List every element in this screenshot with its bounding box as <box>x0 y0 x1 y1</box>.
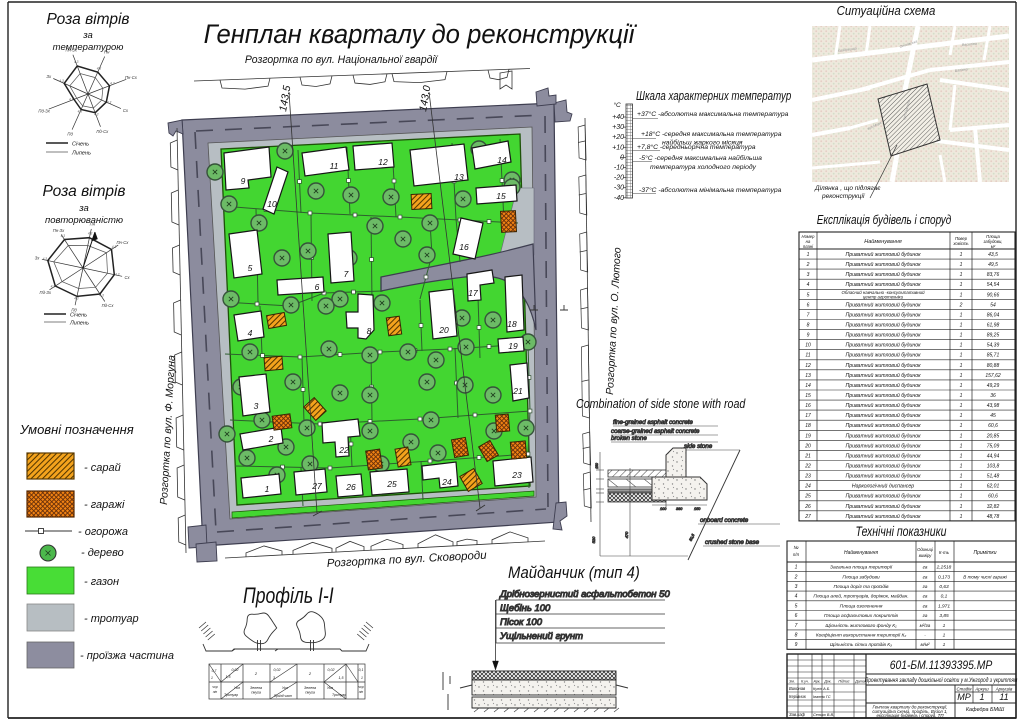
svg-text:1: 1 <box>960 373 963 379</box>
svg-text:9: 9 <box>241 176 246 186</box>
svg-text:10: 10 <box>805 343 811 349</box>
svg-text:Арк.: Арк. <box>812 680 820 684</box>
svg-text:чор: чор <box>212 685 217 689</box>
svg-text:Приватний житловий будинок: Приватний житловий будинок <box>845 301 921 308</box>
svg-text:2: 2 <box>268 434 274 444</box>
svg-text:МР: МР <box>957 692 971 702</box>
svg-text:16: 16 <box>805 403 811 409</box>
svg-text:1: 1 <box>960 413 963 419</box>
svg-text:Приватний житловий будинок: Приватний житловий будинок <box>845 321 921 328</box>
svg-text:0,1: 0,1 <box>359 668 364 672</box>
svg-text:4,3: 4,3 <box>112 245 117 249</box>
svg-text:Приватний житловий будинок: Приватний житловий будинок <box>845 352 921 359</box>
svg-text:смуга: смуга <box>305 691 315 695</box>
svg-text:0,02: 0,02 <box>328 668 335 672</box>
svg-text:- дерево: - дерево <box>81 547 124 559</box>
svg-text:Пн-Сх: Пн-Сх <box>125 75 138 80</box>
svg-text:Щільність житлового фонду К₁: Щільність житлового фонду К₁ <box>825 623 897 629</box>
svg-text:Площа забудови: Площа забудови <box>842 574 880 580</box>
svg-text:Липень: Липень <box>69 321 89 327</box>
svg-text:-40: -40 <box>614 195 624 202</box>
svg-text:Приватний житловий будинок: Приватний житловий будинок <box>845 261 921 268</box>
svg-text:11: 11 <box>330 161 339 171</box>
svg-text:Приватний житловий будинок: Приватний житловий будинок <box>845 432 921 439</box>
svg-text:1: 1 <box>361 676 363 680</box>
svg-text:Примітки: Примітки <box>973 550 996 556</box>
svg-text:380: 380 <box>676 507 683 511</box>
svg-text:21: 21 <box>512 386 523 396</box>
svg-text:1: 1 <box>960 484 963 490</box>
svg-text:2: 2 <box>959 302 963 308</box>
svg-text:150: 150 <box>694 507 701 511</box>
svg-text:520: 520 <box>591 536 596 543</box>
svg-text:4,3: 4,3 <box>110 82 115 86</box>
svg-text:Ділянка , що підлягає: Ділянка , що підлягає <box>814 184 881 192</box>
svg-text:157,62: 157,62 <box>985 373 1001 379</box>
svg-text:+30: +30 <box>612 124 624 131</box>
svg-text:м²: м² <box>991 244 996 249</box>
svg-text:24: 24 <box>804 484 811 490</box>
svg-text:49,29: 49,29 <box>987 383 1000 389</box>
svg-text:1: 1 <box>960 343 963 349</box>
svg-text:Липень: Липень <box>71 151 91 157</box>
svg-text:Пн-Сх: Пн-Сх <box>116 240 129 245</box>
svg-text:3: 3 <box>807 272 810 278</box>
svg-text:15: 15 <box>496 191 506 201</box>
svg-text:6: 6 <box>807 302 810 308</box>
svg-text:7: 7 <box>807 312 810 318</box>
svg-text:Приватний житловий будинок: Приватний житловий будинок <box>845 281 921 288</box>
svg-text:2,2518: 2,2518 <box>936 565 952 571</box>
svg-text:Док.: Док. <box>823 680 831 684</box>
svg-text:+40: +40 <box>612 114 624 121</box>
svg-text:12: 12 <box>378 157 388 167</box>
svg-text:0,02: 0,02 <box>274 668 281 672</box>
svg-text:4: 4 <box>248 328 253 338</box>
svg-text:-10: -10 <box>614 165 624 172</box>
svg-text:1: 1 <box>960 514 963 520</box>
svg-text:1: 1 <box>943 623 946 629</box>
svg-text:Підпис: Підпис <box>838 680 849 684</box>
svg-text:51,48: 51,48 <box>987 474 1000 480</box>
svg-text:Кулін А.Б.: Кулін А.Б. <box>813 687 830 691</box>
svg-text:1: 1 <box>960 453 963 459</box>
svg-text:Приватний житловий будинок: Приватний житловий будинок <box>845 382 921 389</box>
svg-text:Виконав: Виконав <box>789 686 806 691</box>
svg-text:side stone: side stone <box>684 443 713 450</box>
svg-text:Наркологічний диспансер: Наркологічний диспансер <box>852 483 914 490</box>
svg-text:Приватний житловий будинок: Приватний житловий будинок <box>845 392 921 399</box>
svg-text:Приватний житловий будинок: Приватний житловий будинок <box>845 493 921 500</box>
svg-text:Площа озеленення: Площа озеленення <box>840 603 883 609</box>
svg-text:га: га <box>923 603 928 608</box>
svg-text:Приватний житловий будинок: Приватний житловий будинок <box>845 412 921 419</box>
svg-text:Зм.: Зм. <box>789 680 795 684</box>
svg-text:coarse-grained asphalt concret: coarse-grained asphalt concrete <box>611 428 700 435</box>
svg-text:2: 2 <box>794 574 798 580</box>
svg-text:+37°С -абсолютна максимальна т: +37°С -абсолютна максимальна температура <box>637 110 789 118</box>
svg-text:470: 470 <box>624 531 629 538</box>
svg-text:Керівник: Керівник <box>789 694 807 699</box>
svg-text:1,5: 1,5 <box>339 676 344 680</box>
svg-text:-30: -30 <box>614 185 624 192</box>
svg-text:1: 1 <box>960 252 963 258</box>
svg-text:26: 26 <box>804 504 811 510</box>
svg-text:1: 1 <box>960 383 963 389</box>
svg-text:Приватний житловий будинок: Приватний житловий будинок <box>845 271 921 278</box>
svg-text:7: 7 <box>795 623 798 629</box>
svg-text:54,39: 54,39 <box>987 343 1000 349</box>
svg-text:- тротуар: - тротуар <box>84 613 139 625</box>
svg-text:1: 1 <box>960 262 963 268</box>
svg-text:Аркуш: Аркуш <box>974 687 989 692</box>
svg-text:Проїзд част: Проїзд част <box>274 694 293 698</box>
svg-text:3: 3 <box>273 676 275 680</box>
svg-text:-20: -20 <box>614 175 624 182</box>
svg-text:8: 8 <box>807 322 810 328</box>
svg-text:Укл: Укл <box>282 686 288 690</box>
svg-text:1: 1 <box>960 282 963 288</box>
svg-text:Проектування закладу дошкільно: Проектування закладу дошкільної освіти у… <box>865 678 1018 685</box>
svg-text:Приватний житловий будинок: Приватний житловий будинок <box>845 332 921 339</box>
svg-text:16: 16 <box>459 242 469 252</box>
svg-text:центр агротехніки: центр агротехніки <box>863 294 904 299</box>
svg-text:Площа доріг та проїздів: Площа доріг та проїздів <box>833 584 889 590</box>
svg-text:19: 19 <box>805 433 811 439</box>
svg-text:Пд: Пд <box>67 132 73 137</box>
svg-text:Найменування: Найменування <box>844 549 878 556</box>
svg-text:Площа асфальтових покриттів: Площа асфальтових покриттів <box>824 613 898 619</box>
svg-text:4,3: 4,3 <box>61 234 66 238</box>
svg-text:- сарай: - сарай <box>84 462 121 474</box>
svg-text:га: га <box>923 565 928 570</box>
svg-text:га: га <box>923 574 928 579</box>
svg-text:14: 14 <box>497 155 507 165</box>
svg-text:Профіль І-І: Профіль І-І <box>243 584 334 608</box>
svg-text:60,6: 60,6 <box>988 494 998 500</box>
svg-text:Пд-Зх: Пд-Зх <box>40 290 52 295</box>
svg-text:Експлікація будівель і споруд: Експлікація будівель і споруд <box>817 214 952 227</box>
svg-text:Технічні показники: Технічні показники <box>856 524 947 540</box>
svg-text:Приватний житловий будинок: Приватний житловий будинок <box>845 513 921 520</box>
svg-text:86,04: 86,04 <box>987 312 1000 318</box>
svg-text:1: 1 <box>960 443 963 449</box>
svg-text:В тому числі гаражі: В тому числі гаражі <box>963 574 1007 579</box>
svg-text:Кафедра БМіШ: Кафедра БМіШ <box>966 707 1004 713</box>
svg-text:1: 1 <box>960 292 963 298</box>
svg-text:смуга: смуга <box>251 691 261 695</box>
svg-text:+10: +10 <box>612 144 624 151</box>
svg-text:плані: плані <box>803 244 814 249</box>
svg-text:1: 1 <box>960 403 963 409</box>
svg-text:+20: +20 <box>612 134 624 141</box>
svg-text:1: 1 <box>960 353 963 359</box>
svg-text:4: 4 <box>795 594 798 600</box>
svg-text:1: 1 <box>807 252 810 258</box>
svg-text:1: 1 <box>960 463 963 469</box>
svg-text:20: 20 <box>438 325 449 335</box>
svg-text:4,3: 4,3 <box>97 66 102 70</box>
svg-text:4: 4 <box>807 282 810 288</box>
svg-text:22: 22 <box>338 445 349 455</box>
svg-text:60,6: 60,6 <box>988 423 998 429</box>
svg-text:22: 22 <box>804 463 811 469</box>
svg-text:9: 9 <box>795 642 798 648</box>
svg-text:Майданчик (тип 4): Майданчик (тип 4) <box>508 564 640 582</box>
svg-text:Пн: Пн <box>90 221 96 226</box>
svg-text:75,09: 75,09 <box>987 443 1000 449</box>
svg-text:Найменування: Найменування <box>864 238 902 245</box>
svg-text:лін: лін <box>358 690 364 694</box>
svg-text:Combination of side stone with: Combination of side stone with road <box>576 396 746 411</box>
svg-text:5: 5 <box>807 292 810 298</box>
svg-text:1: 1 <box>211 676 213 680</box>
svg-text:Приватний житловий будинок: Приватний житловий будинок <box>845 372 921 379</box>
svg-text:6: 6 <box>795 613 798 619</box>
svg-text:17: 17 <box>468 288 478 298</box>
svg-text:43,98: 43,98 <box>987 403 1000 409</box>
svg-text:Пд-Зх: Пд-Зх <box>38 108 50 113</box>
svg-text:8: 8 <box>367 326 372 336</box>
svg-text:4,3: 4,3 <box>59 79 64 83</box>
svg-text:61,98: 61,98 <box>987 322 1000 328</box>
svg-text:11: 11 <box>805 353 810 359</box>
svg-text:1: 1 <box>960 504 963 510</box>
svg-text:1: 1 <box>960 423 963 429</box>
svg-text:Приватний житловий будинок: Приватний житловий будинок <box>845 422 921 429</box>
svg-text:м/м²: м/м² <box>920 642 930 647</box>
svg-text:1,971: 1,971 <box>938 603 950 609</box>
svg-text:4,3: 4,3 <box>107 100 112 104</box>
svg-text:Сх: Сх <box>123 108 129 113</box>
svg-text:20,85: 20,85 <box>986 433 1000 439</box>
svg-text:Пд-Сх: Пд-Сх <box>102 303 115 308</box>
svg-text:14: 14 <box>805 383 811 389</box>
svg-text:2: 2 <box>806 262 810 268</box>
svg-text:Шкала характерних температур: Шкала характерних температур <box>636 90 791 103</box>
svg-text:Одиниці: Одиниці <box>917 547 934 552</box>
svg-text:Умовні позначення: Умовні позначення <box>19 422 134 437</box>
svg-text:Приватний житловий будинок: Приватний житловий будинок <box>845 473 921 480</box>
svg-text:1: 1 <box>960 393 963 399</box>
svg-text:Іваннік ГС: Іваннік ГС <box>813 695 831 699</box>
svg-text:Січень: Січень <box>70 313 87 319</box>
svg-text:1: 1 <box>943 633 946 639</box>
svg-text:1: 1 <box>943 642 946 648</box>
svg-text:1: 1 <box>960 494 963 500</box>
svg-text:реконструкції: реконструкції <box>821 192 866 200</box>
svg-text:601-БМ.11393395.МР: 601-БМ.11393395.МР <box>890 660 993 673</box>
svg-text:4,3: 4,3 <box>115 272 120 276</box>
svg-text:32,82: 32,82 <box>987 504 1000 510</box>
svg-text:8: 8 <box>795 633 798 639</box>
svg-text:+7,8°С -середньорічна температ: +7,8°С -середньорічна температура <box>637 143 756 151</box>
svg-text:Коефіцієнт використання терито: Коефіцієнт використання території К₂ <box>816 633 907 639</box>
svg-text:6: 6 <box>315 282 320 292</box>
svg-text:Дата: Дата <box>854 680 864 684</box>
svg-text:0,173: 0,173 <box>938 574 950 580</box>
svg-text:К.уч.: К.уч. <box>801 680 809 684</box>
svg-text:19: 19 <box>508 341 518 351</box>
svg-text:36: 36 <box>990 393 996 399</box>
svg-text:Щебінь 100: Щебінь 100 <box>500 603 551 614</box>
svg-text:49,5: 49,5 <box>988 262 998 268</box>
svg-text:27: 27 <box>311 481 322 491</box>
svg-text:повторюваністю: повторюваністю <box>45 215 123 226</box>
svg-text:температура холодного періоду: температура холодного періоду <box>650 163 757 171</box>
svg-text:0,7: 0,7 <box>212 669 217 673</box>
svg-text:Ситуаційна схема: Ситуаційна схема <box>837 3 936 18</box>
svg-text:0: 0 <box>620 154 624 161</box>
svg-text:Укл: Укл <box>327 686 333 690</box>
svg-text:-5°С -середня максимальна найб: -5°С -середня максимальна найбільша <box>639 154 762 162</box>
svg-text:чор: чор <box>358 685 363 689</box>
svg-text:Приватний житловий будинок: Приватний житловий будинок <box>845 342 921 349</box>
svg-text:Розгортка по вул. Національної: Розгортка по вул. Національної гвардії <box>245 54 439 66</box>
svg-text:Пісок 100: Пісок 100 <box>500 617 543 628</box>
svg-text:83,76: 83,76 <box>987 272 1000 278</box>
svg-text:виміру: виміру <box>919 553 933 558</box>
svg-text:Дрібнозернистий асфальтобетон: Дрібнозернистий асфальтобетон 50 <box>499 589 670 600</box>
svg-text:температурою: температурою <box>53 42 124 53</box>
svg-text:Зелена: Зелена <box>250 686 262 690</box>
svg-text:°С: °С <box>613 101 621 109</box>
svg-text:17: 17 <box>805 413 811 419</box>
svg-text:13: 13 <box>454 172 464 182</box>
svg-text:Аркушів: Аркушів <box>995 687 1013 692</box>
svg-text:3: 3 <box>254 401 259 411</box>
svg-text:10: 10 <box>267 199 277 209</box>
svg-text:fine-grained asphalt concrete: fine-grained asphalt concrete <box>613 419 693 426</box>
svg-text:Пн-Зх: Пн-Зх <box>53 228 65 233</box>
svg-text:150: 150 <box>595 463 599 469</box>
svg-text:0,1: 0,1 <box>941 594 948 600</box>
svg-text:20: 20 <box>804 443 811 449</box>
svg-text:Загальна площа території: Загальна площа території <box>830 565 893 571</box>
svg-text:54: 54 <box>990 302 996 308</box>
svg-text:54,54: 54,54 <box>987 282 1000 288</box>
svg-text:Приватний житловий будинок: Приватний житловий будинок <box>845 362 921 369</box>
svg-text:Сх: Сх <box>124 275 130 280</box>
svg-text:Площа алей, тротуарів, доріжок: Площа алей, тротуарів, доріжок, майдан. <box>813 593 908 600</box>
svg-text:onboard concrete: onboard concrete <box>700 517 749 524</box>
svg-text:лін: лін <box>212 690 218 694</box>
svg-text:Ущільнений грунт: Ущільнений грунт <box>499 631 583 642</box>
svg-text:- газон: - газон <box>84 576 119 588</box>
svg-text:85,71: 85,71 <box>987 353 1000 359</box>
svg-text:Приватний житловий будинок: Приватний житловий будинок <box>845 402 921 409</box>
svg-text:га: га <box>923 613 928 618</box>
svg-text:48,78: 48,78 <box>987 514 1000 520</box>
svg-text:Укл: Укл <box>234 686 240 690</box>
svg-text:експлікація будівель і споруд,: експлікація будівель і споруд, ТП <box>876 713 944 718</box>
svg-text:м²/га: м²/га <box>920 623 931 628</box>
svg-text:Тротуар: Тротуар <box>224 693 238 697</box>
svg-text:1: 1 <box>265 484 270 494</box>
svg-text:crushed stone base: crushed stone base <box>705 539 760 546</box>
svg-text:Пн: Пн <box>104 49 110 54</box>
svg-text:Приватний житловий будинок: Приватний житловий будинок <box>845 462 921 469</box>
svg-text:-37°С -абсолютна мінімальна те: -37°С -абсолютна мінімальна температура <box>639 186 782 194</box>
svg-text:Стадія: Стадія <box>957 687 973 692</box>
svg-text:Пд-Сх: Пд-Сх <box>96 129 109 134</box>
svg-text:1: 1 <box>960 272 963 278</box>
svg-text:5: 5 <box>795 603 798 609</box>
svg-text:13: 13 <box>805 373 811 379</box>
svg-text:Роза вітрів: Роза вітрів <box>43 183 126 200</box>
svg-text:4,3: 4,3 <box>74 60 79 64</box>
svg-text:К-ть: К-ть <box>939 550 950 555</box>
svg-text:Приватний житловий будинок: Приватний житловий будинок <box>845 503 921 510</box>
svg-text:га: га <box>923 584 928 589</box>
svg-text:100: 100 <box>660 507 667 511</box>
svg-text:Генплан кварталу до реконструк: Генплан кварталу до реконструкції <box>204 18 638 49</box>
svg-text:43,5: 43,5 <box>988 252 998 258</box>
svg-text:Роза вітрів: Роза вітрів <box>47 11 130 28</box>
svg-text:1,5: 1,5 <box>226 675 231 679</box>
svg-text:Щільність сітки проїздів К₃: Щільність сітки проїздів К₃ <box>830 642 892 648</box>
svg-text:1: 1 <box>795 565 798 571</box>
svg-text:25: 25 <box>804 494 811 500</box>
svg-text:90,66: 90,66 <box>987 292 1000 298</box>
svg-text:12: 12 <box>805 363 811 369</box>
svg-text:24: 24 <box>441 477 452 487</box>
svg-text:за: за <box>82 30 93 41</box>
svg-text:3: 3 <box>795 584 798 590</box>
svg-text:62,01: 62,01 <box>987 484 1000 490</box>
svg-text:23: 23 <box>804 474 811 480</box>
svg-text:23: 23 <box>511 470 522 480</box>
svg-text:1: 1 <box>960 363 963 369</box>
svg-text:1: 1 <box>960 312 963 318</box>
svg-text:89,25: 89,25 <box>987 333 1000 339</box>
svg-text:1: 1 <box>960 322 963 328</box>
svg-text:п/п: п/п <box>793 552 800 557</box>
svg-text:№: № <box>794 545 799 550</box>
svg-text:18: 18 <box>805 423 811 429</box>
svg-text:9: 9 <box>807 333 810 339</box>
svg-text:18: 18 <box>507 319 517 329</box>
svg-text:3,85: 3,85 <box>939 613 949 619</box>
svg-text:Пн-Зх: Пн-Зх <box>65 48 77 53</box>
svg-text:4,3: 4,3 <box>43 257 48 261</box>
svg-text:11: 11 <box>999 692 1008 702</box>
svg-text:21: 21 <box>804 453 811 459</box>
svg-text:1: 1 <box>960 474 963 480</box>
svg-text:Приватний житловий будинок: Приватний житловий будинок <box>845 452 921 459</box>
svg-text:га: га <box>923 594 928 599</box>
svg-text:0,02: 0,02 <box>232 668 239 672</box>
svg-text:Сенько В.В.: Сенько В.В. <box>813 713 834 717</box>
svg-text:Зав.каф: Зав.каф <box>789 712 806 717</box>
svg-text:Приватний житловий будинок: Приватний житловий будинок <box>845 442 921 449</box>
svg-text:Приватний житловий будинок: Приватний житловий будинок <box>845 311 921 318</box>
svg-text:15: 15 <box>805 393 811 399</box>
svg-text:1: 1 <box>979 692 984 702</box>
svg-text:7: 7 <box>344 269 349 279</box>
svg-text:ховість: ховість <box>952 241 968 246</box>
svg-text:44,94: 44,94 <box>987 453 1000 459</box>
svg-text:Січень: Січень <box>72 142 89 148</box>
svg-text:за: за <box>78 203 89 214</box>
svg-text:+18°С -середня максимальна те: +18°С -середня максимальна температура <box>641 130 782 138</box>
svg-text:0,63: 0,63 <box>939 584 949 590</box>
svg-text:- проїзжа частина: - проїзжа частина <box>80 650 174 662</box>
svg-text:5: 5 <box>248 263 253 273</box>
svg-text:1: 1 <box>960 433 963 439</box>
svg-text:4,3: 4,3 <box>88 232 93 236</box>
svg-text:26: 26 <box>345 482 356 492</box>
